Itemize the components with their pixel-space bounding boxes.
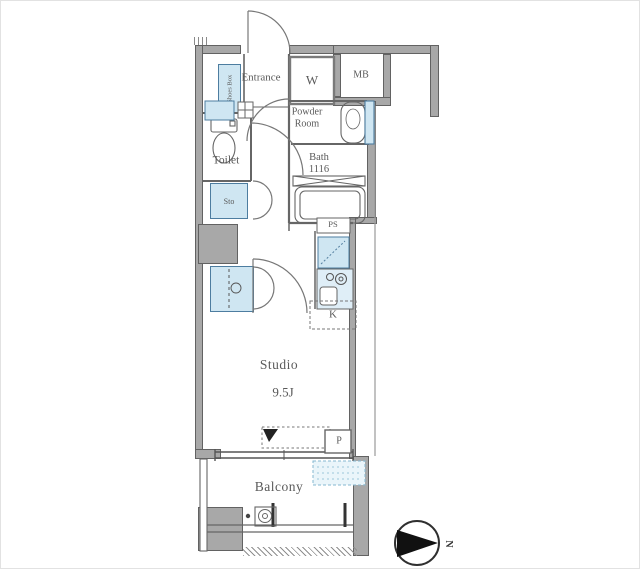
toilet-label: Toilet bbox=[213, 154, 240, 167]
ac-unit-outline bbox=[262, 427, 330, 448]
balcony-label: Balcony bbox=[255, 479, 304, 495]
balcony-edge-hatch bbox=[243, 547, 357, 556]
powder-room-basin bbox=[341, 101, 374, 144]
pipe-label: P bbox=[336, 435, 342, 447]
studio-label: Studio bbox=[260, 357, 298, 373]
compass-north-icon bbox=[395, 521, 439, 565]
meter-box-label: MB bbox=[353, 69, 369, 81]
bath-fixtures bbox=[293, 176, 365, 223]
floor-plan: Shoes Box Sto bbox=[0, 0, 640, 569]
closet-label: W bbox=[306, 74, 318, 89]
toilet-washbasin bbox=[205, 101, 253, 120]
powder-room-label: Powder Room bbox=[292, 107, 323, 130]
pipe-shaft-label: PS bbox=[328, 220, 337, 230]
north-label: N bbox=[442, 540, 454, 547]
balcony-elements bbox=[200, 459, 365, 551]
closet-hanger bbox=[229, 269, 241, 310]
entrance-label: Entrance bbox=[241, 72, 280, 85]
plan-linework bbox=[1, 1, 640, 569]
studio-size-label: 9.5J bbox=[272, 386, 293, 401]
bath-label: Bath 1116 bbox=[309, 152, 329, 176]
kitchen-label: K bbox=[329, 309, 337, 322]
